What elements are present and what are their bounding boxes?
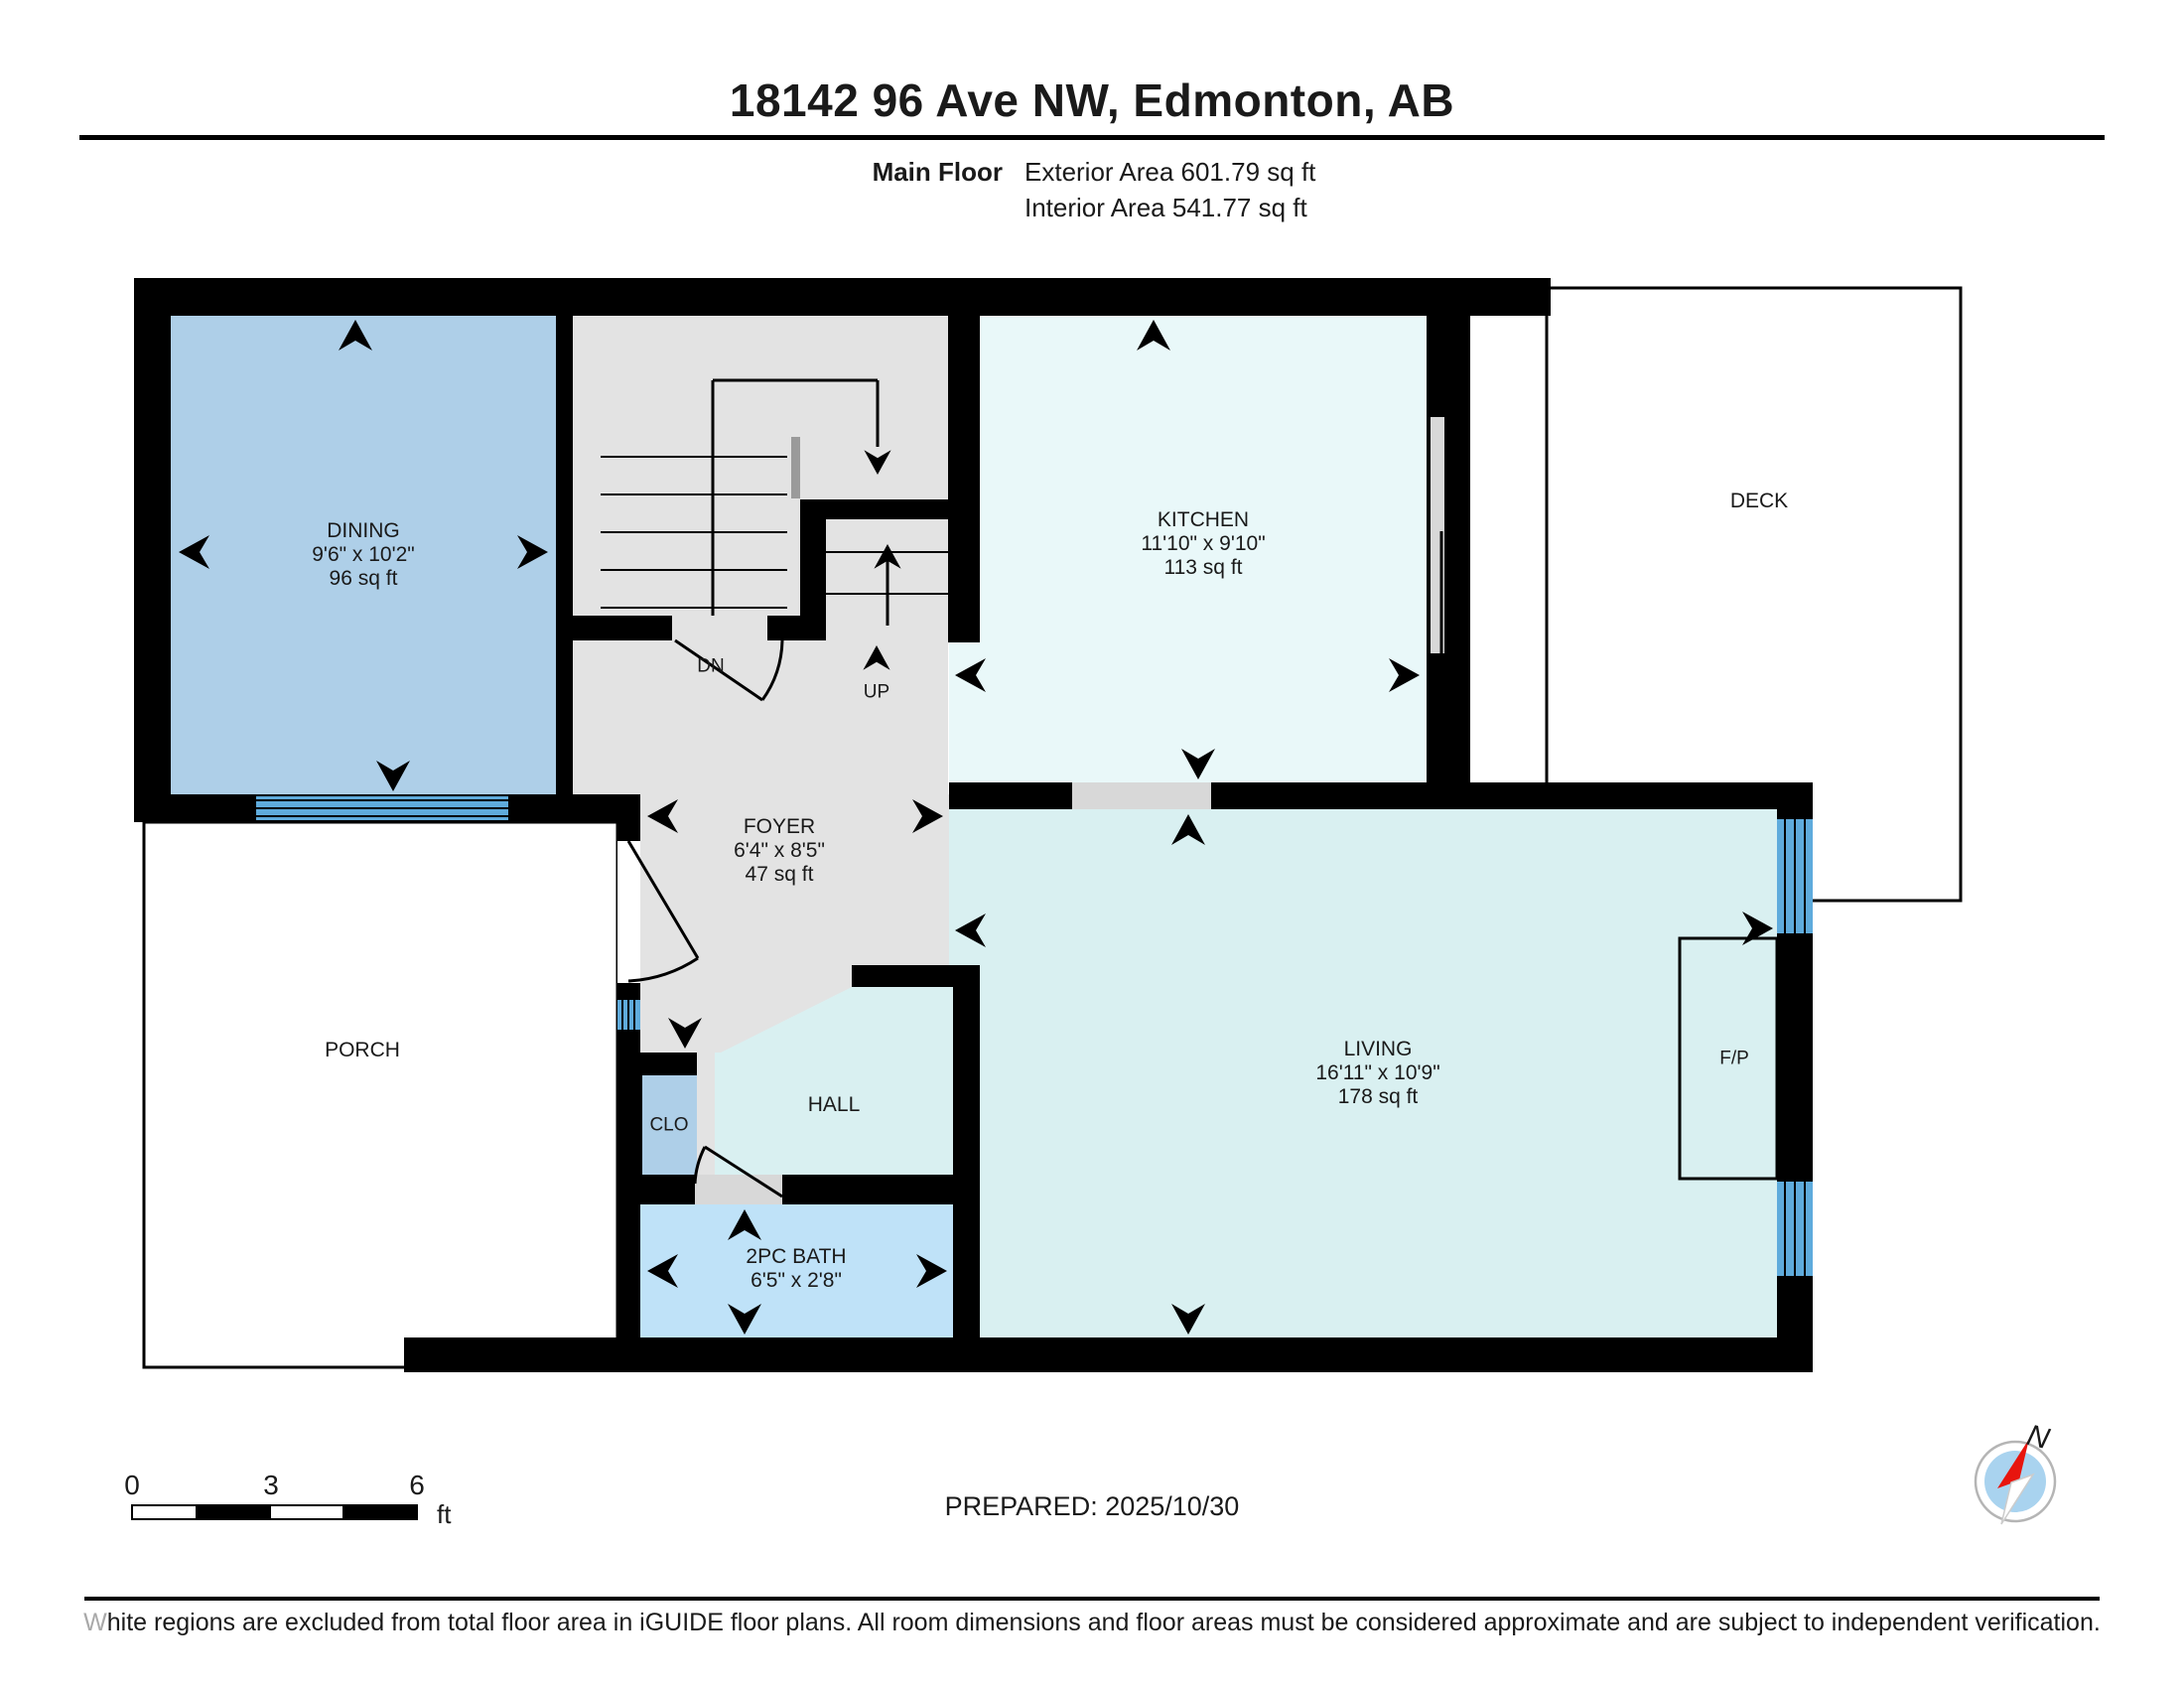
wall-dining-east: [556, 316, 573, 794]
wall-closet-west: [617, 1075, 642, 1175]
room-label-closet: CLO: [649, 1115, 688, 1136]
room-label-foyer: FOYER6'4" x 8'5"47 sq ft: [734, 815, 825, 887]
room-label-fireplace: F/P: [1719, 1049, 1749, 1069]
prepared-date: PREPARED: 2025/10/30: [0, 1491, 2184, 1522]
wall-bottom: [404, 1337, 1813, 1372]
stair-railing: [791, 437, 800, 498]
footer-divider: [84, 1597, 2100, 1601]
room-label-hall: HALL: [808, 1093, 861, 1117]
wall-bath-top: [617, 1175, 956, 1204]
porch-outline: [144, 822, 617, 1367]
wall-hall-top: [852, 965, 980, 987]
wall-stairs-bottom-left: [573, 616, 672, 640]
stairs-dn-label: DN: [697, 656, 724, 677]
floor-plan-svg: [0, 0, 2184, 1688]
wall-kitchen-west: [948, 316, 980, 642]
room-label-kitchen: KITCHEN11'10" x 9'10"113 sq ft: [1141, 508, 1265, 580]
room-label-porch: PORCH: [325, 1039, 400, 1062]
wall-hall-east: [953, 987, 980, 1337]
room-label-dining: DINING9'6" x 10'2"96 sq ft: [312, 519, 415, 591]
stairs-up-label: UP: [864, 682, 889, 703]
wall-upflight-west: [800, 519, 826, 640]
wall-closet-top: [617, 1053, 697, 1075]
room-label-living: LIVING16'11" x 10'9"178 sq ft: [1315, 1038, 1439, 1109]
room-label-bath: 2PC BATH6'5" x 2'8": [746, 1245, 846, 1293]
kitchen-living-opening: [1072, 782, 1211, 809]
disclaimer-text: White regions are excluded from total fl…: [0, 1609, 2184, 1637]
wall-upflight-north: [800, 499, 949, 519]
wall-bath-west: [617, 1204, 640, 1337]
front-door-opening: [617, 841, 640, 983]
room-label-deck: DECK: [1730, 490, 1788, 513]
floor-plan-page: 18142 96 Ave NW, Edmonton, AB Main Floor…: [0, 0, 2184, 1688]
wall-top: [134, 278, 1551, 316]
wall-stairs-bottom-right: [767, 616, 800, 640]
wall-left: [134, 278, 171, 804]
